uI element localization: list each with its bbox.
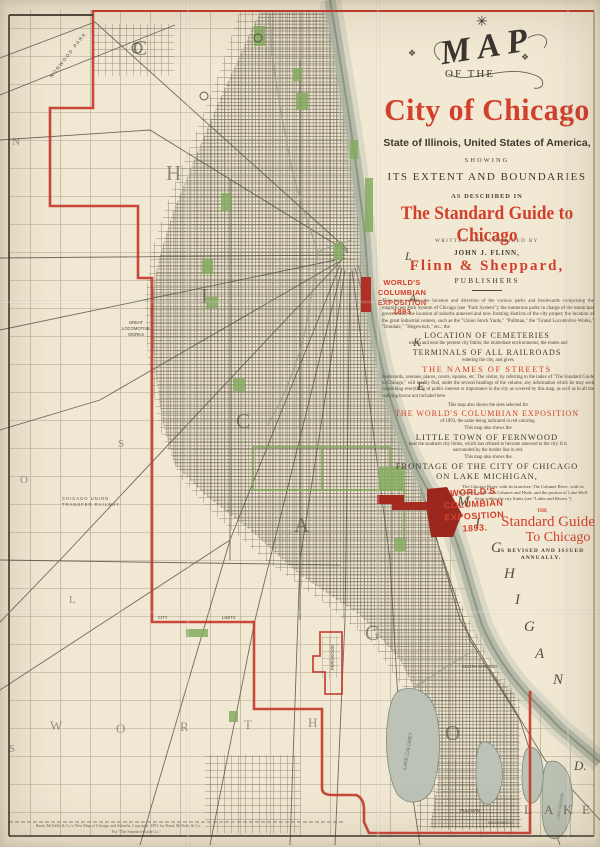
- transfer-railway-label: CHICAGO UNION TRANSFER RAILWAY: [62, 496, 142, 509]
- terminals-heading: TERMINALS OF ALL RAILROADS: [374, 348, 600, 357]
- divider-rule: [472, 290, 502, 291]
- letter-h: H: [166, 161, 181, 185]
- expo-heading: THE WORLD'S COLUMBIAN EXPOSITION: [374, 409, 600, 418]
- also-shows-1: This map also shows the: [382, 426, 594, 431]
- fernwood-paragraph: near the southern city limits, which has…: [398, 442, 578, 454]
- lakebig-e: E: [582, 802, 590, 817]
- ind-letter: D.: [573, 758, 587, 773]
- mich-n: N: [552, 672, 564, 688]
- of-the-label: OF THE: [430, 68, 510, 80]
- locomotive-works-label: GREAT LOCOMOTIVE WORKS: [108, 320, 164, 338]
- extent-line: ITS EXTENT AND BOUNDARIES: [374, 171, 600, 183]
- letter-c1: C: [133, 36, 147, 60]
- imprint-line-1: Rand, McNally & Co.'s New Map of Chicago…: [36, 823, 216, 829]
- mich-g: G: [524, 619, 535, 635]
- written-by-label: WRITTEN AND COMPILED BY: [374, 239, 600, 244]
- annual-line-1: IS REVISED AND ISSUED: [496, 548, 586, 554]
- cemeteries-heading: LOCATION OF CEMETERIES: [374, 331, 600, 340]
- also-shows-2: This map also shows the: [382, 455, 594, 460]
- frontage-heading-2: ON LAKE MICHIGAN,: [374, 471, 600, 481]
- pullman-label: PULLMAN: [460, 808, 480, 813]
- letter-i: I: [201, 284, 208, 308]
- mich-i2: I: [514, 592, 521, 608]
- letter-wh: H: [308, 715, 317, 730]
- letter-sl: L: [69, 594, 76, 606]
- sites-line: This map also shows the sites selected f…: [382, 403, 594, 408]
- expo-lakefront-site: [361, 277, 371, 312]
- mich-h: H: [503, 566, 516, 582]
- streets-heading: THE NAMES OF STREETS: [374, 364, 600, 374]
- lakebig-k: K: [563, 802, 573, 817]
- standard-guide-script-2: To Chicago: [508, 530, 600, 546]
- fernwood-label: FERNWOOD: [330, 645, 335, 670]
- letter-s2: S: [9, 743, 15, 755]
- city-of-chicago-title: City of Chicago: [379, 92, 596, 128]
- letter-wr: R: [180, 719, 189, 734]
- streets-paragraph: boulevards, avenues, places, courts, squ…: [382, 375, 594, 400]
- state-line: State of Illinois, United States of Amer…: [374, 137, 600, 149]
- expo-line: of 1893, the same being indicated in red…: [382, 419, 594, 424]
- lakebig-a: A: [544, 802, 554, 817]
- city-limits-label-2: LIMITS: [222, 615, 236, 620]
- expo-downtown-label: WORLD'S COLUMBIAN EXPOSITION 1893: [376, 278, 428, 317]
- annual-line-2: ANNUALLY.: [496, 555, 586, 561]
- letter-s1: S: [118, 438, 124, 450]
- fernwood-heading: LITTLE TOWN OF FERNWOOD: [374, 432, 600, 442]
- standard-guide-script-1: Standard Guide: [498, 514, 598, 531]
- letter-so: O: [20, 474, 28, 486]
- hegewisch-label: HEGEWISCH: [488, 820, 513, 825]
- terminals-paragraph: entering the city, and gives: [382, 358, 594, 363]
- letter-wo: O: [116, 721, 125, 736]
- publisher-name: Flinn & Sheppard,: [374, 258, 600, 275]
- lakebig-l: L: [524, 802, 532, 817]
- expo-midway: [392, 502, 428, 510]
- letter-a: A: [294, 513, 310, 537]
- letter-g: G: [365, 621, 380, 645]
- letter-wt: T: [244, 717, 252, 732]
- south-chicago-label: SOUTH CHICAGO: [462, 664, 498, 669]
- author-name: JOHN J. FLINN,: [374, 249, 600, 257]
- letter-o: O: [445, 721, 460, 745]
- mich-a: A: [534, 646, 545, 662]
- letter-c2: C: [236, 409, 250, 433]
- showing-label: SHOWING: [374, 157, 600, 164]
- cross-ornament-left-icon: ❖: [408, 48, 416, 58]
- as-described-label: AS DESCRIBED IN: [374, 193, 600, 200]
- map-sheet: C H I C A G O W O R T H N S O L S L A K …: [0, 0, 600, 847]
- city-limits-label-1: CITY: [158, 615, 168, 620]
- frontage-heading-1: FRONTAGE OF THE CITY OF CHICAGO: [374, 461, 600, 471]
- imprint-line-2: For "The Standard Guide Co.": [112, 829, 232, 834]
- letter-n: N: [12, 136, 20, 148]
- letter-w: W: [50, 718, 63, 733]
- cemeteries-paragraph: within and near the present city limits;…: [382, 341, 594, 346]
